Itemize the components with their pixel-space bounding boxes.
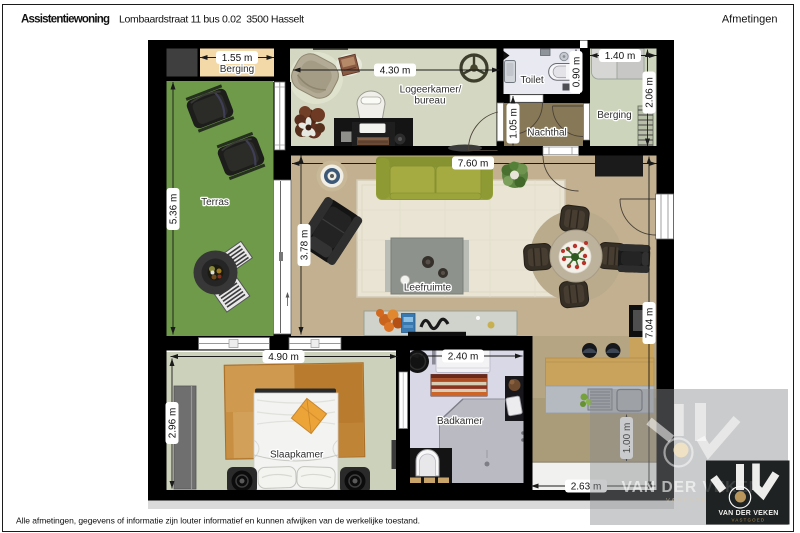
svg-text:Toilet: Toilet bbox=[520, 75, 544, 86]
svg-text:VAN DER VEKEN: VAN DER VEKEN bbox=[719, 510, 779, 517]
svg-text:bureau: bureau bbox=[414, 96, 445, 107]
svg-text:1.05 m: 1.05 m bbox=[509, 108, 520, 139]
svg-text:Badkamer: Badkamer bbox=[437, 416, 483, 427]
svg-text:Berging: Berging bbox=[220, 64, 254, 75]
svg-text:2.96 m: 2.96 m bbox=[168, 408, 179, 439]
svg-text:1.55 m: 1.55 m bbox=[222, 53, 253, 64]
svg-text:Assistentiewoning: Assistentiewoning bbox=[21, 14, 110, 26]
svg-text:4.30 m: 4.30 m bbox=[380, 66, 411, 77]
svg-text:Logeerkamer/: Logeerkamer/ bbox=[400, 85, 462, 96]
svg-text:7.04 m: 7.04 m bbox=[645, 308, 656, 339]
svg-text:3.78 m: 3.78 m bbox=[300, 230, 311, 261]
svg-text:Berging: Berging bbox=[597, 110, 631, 121]
svg-text:Nachthal: Nachthal bbox=[527, 128, 566, 139]
svg-text:1.40 m: 1.40 m bbox=[605, 51, 636, 62]
svg-text:5.36 m: 5.36 m bbox=[169, 194, 180, 225]
svg-text:7.60 m: 7.60 m bbox=[458, 159, 489, 170]
svg-text:0.90 m: 0.90 m bbox=[572, 57, 583, 88]
svg-text:Terras: Terras bbox=[201, 197, 229, 208]
svg-text:Leefruimte: Leefruimte bbox=[404, 283, 452, 294]
svg-text:Slaapkamer: Slaapkamer bbox=[270, 450, 324, 461]
svg-text:4.90 m: 4.90 m bbox=[268, 352, 299, 363]
svg-text:Alle afmetingen, gegevens of i: Alle afmetingen, gegevens of informatie … bbox=[16, 516, 420, 526]
svg-text:2.40 m: 2.40 m bbox=[448, 352, 479, 363]
svg-text:VASTGOED: VASTGOED bbox=[732, 518, 766, 523]
svg-text:2.06 m: 2.06 m bbox=[645, 77, 656, 108]
svg-text:Lombaardstraat 11 bus 0.02 35: Lombaardstraat 11 bus 0.02 3500 Hasselt bbox=[119, 14, 304, 26]
svg-text:VAN DER VEKEN: VAN DER VEKEN bbox=[622, 479, 761, 496]
svg-text:Afmetingen: Afmetingen bbox=[722, 14, 778, 26]
